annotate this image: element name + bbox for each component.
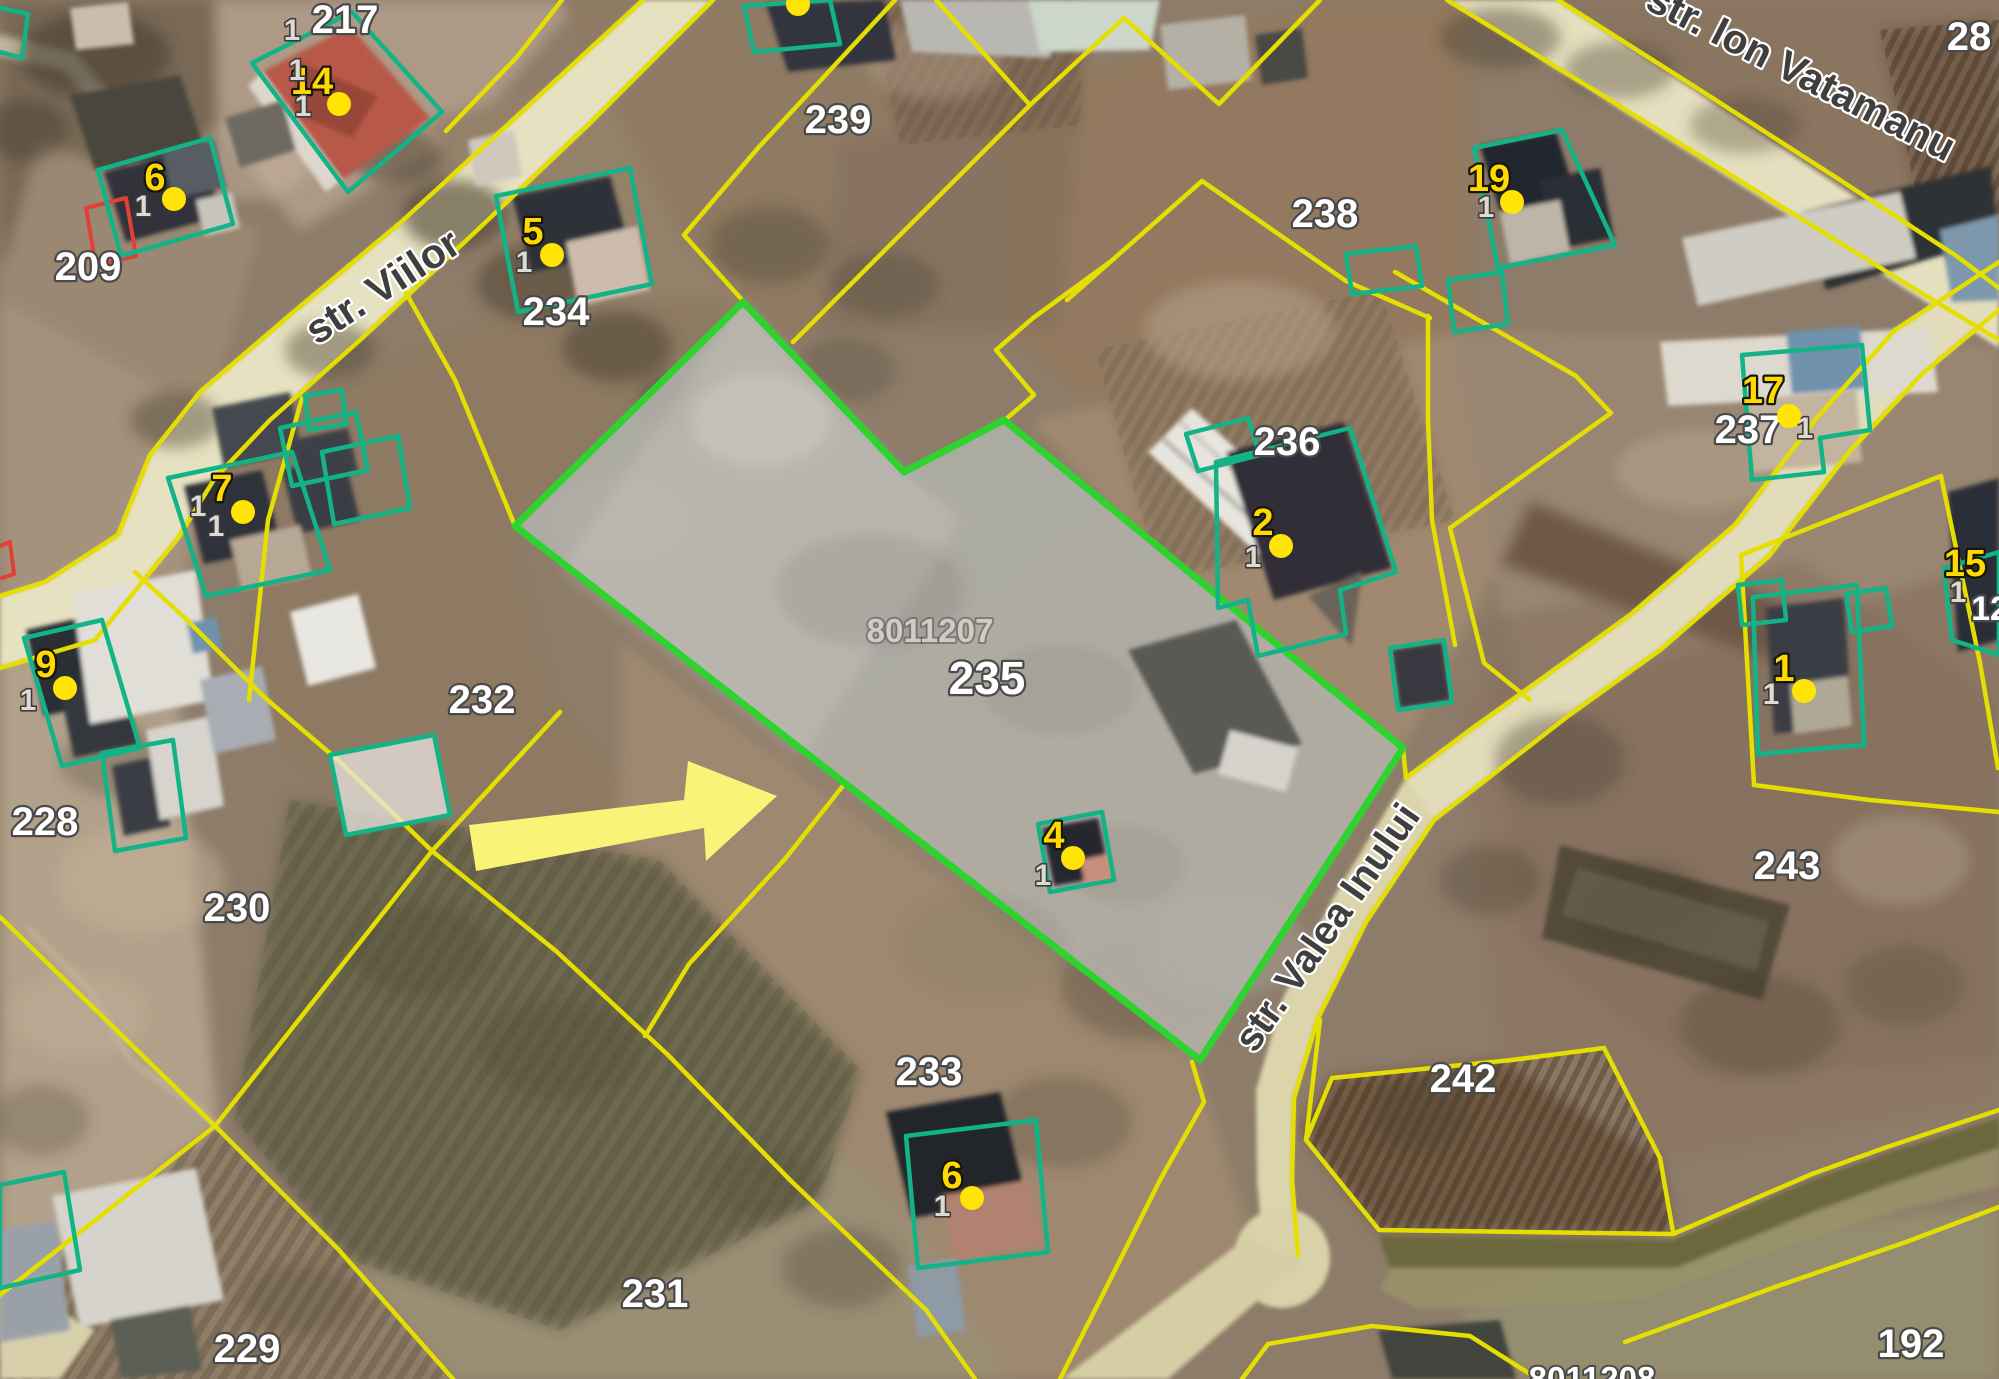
svg-text:243: 243: [1754, 844, 1821, 888]
svg-text:1: 1: [135, 190, 152, 223]
svg-text:1: 1: [1245, 541, 1262, 574]
svg-text:236: 236: [1254, 420, 1321, 464]
svg-text:237: 237: [1715, 408, 1782, 452]
svg-text:7: 7: [211, 468, 232, 510]
svg-text:4: 4: [1043, 815, 1064, 857]
svg-text:12: 12: [1971, 590, 1999, 628]
svg-text:231: 231: [622, 1272, 689, 1316]
svg-text:1: 1: [1950, 576, 1967, 609]
svg-text:228: 228: [12, 800, 79, 844]
svg-text:229: 229: [214, 1327, 281, 1371]
svg-text:1: 1: [190, 490, 207, 523]
svg-text:242: 242: [1430, 1057, 1497, 1101]
svg-text:233: 233: [896, 1050, 963, 1094]
svg-text:1: 1: [20, 684, 37, 717]
svg-text:234: 234: [523, 290, 590, 334]
svg-text:209: 209: [55, 245, 122, 289]
svg-text:230: 230: [204, 886, 271, 930]
svg-text:1: 1: [934, 1190, 951, 1223]
svg-text:217: 217: [312, 0, 379, 42]
svg-text:1: 1: [1478, 191, 1495, 224]
svg-text:239: 239: [805, 98, 872, 142]
svg-text:238: 238: [1292, 192, 1359, 236]
svg-text:28: 28: [1947, 15, 1992, 59]
svg-text:1: 1: [1035, 859, 1052, 892]
svg-text:1: 1: [208, 510, 225, 543]
svg-text:1: 1: [516, 246, 533, 279]
svg-text:9: 9: [35, 644, 56, 686]
svg-text:1: 1: [1763, 678, 1780, 711]
svg-text:235: 235: [949, 652, 1026, 704]
svg-text:1: 1: [284, 14, 301, 47]
svg-text:1: 1: [295, 90, 312, 123]
svg-text:8011207: 8011207: [867, 612, 994, 649]
svg-text:232: 232: [449, 678, 516, 722]
svg-text:192: 192: [1878, 1322, 1945, 1366]
svg-text:2: 2: [1252, 502, 1273, 544]
svg-text:17: 17: [1742, 370, 1784, 412]
svg-text:8011208: 8011208: [1529, 1360, 1656, 1379]
svg-text:1: 1: [289, 54, 306, 87]
